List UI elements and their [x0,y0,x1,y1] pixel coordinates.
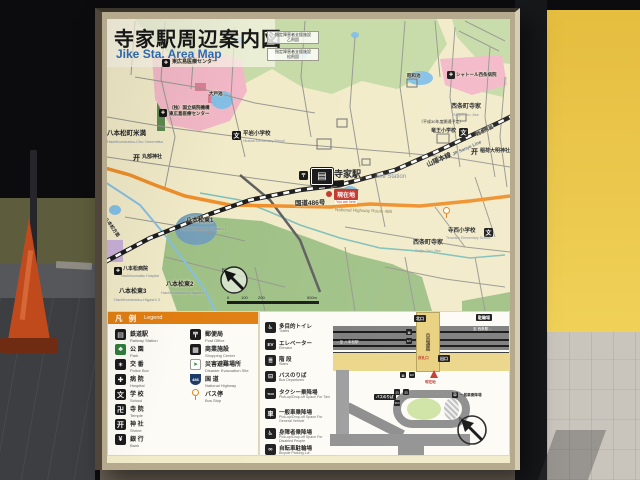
svg-text:N: N [459,417,463,423]
car-icon: 車 [265,408,276,419]
scale-tick: 200 [258,295,265,300]
station-detail-map: ←至 八本松駅 至 西条駅→ 自由通路 北口 駐輪場 ≣ EV 改札口 出口 ≣… [330,312,509,455]
poi-label: 平岩小学校 [243,132,271,138]
ticket-gate-label: 改札口 [418,356,429,361]
area-label-romaji: Saijo-Cho Jike [415,248,441,253]
bicycle-parking-chip: 駐輪場 [476,314,492,321]
hospital-icon: ✚ [162,59,170,67]
car-icon: 車 [452,392,458,398]
bicycle-icon: ∞ [265,444,276,455]
post-office-icon: 〒 [299,171,308,180]
pond-label: 大戸池 [209,92,223,97]
poi-label: 東広島医療センター [169,112,210,117]
area-label: 八本松東3 [119,289,146,295]
poi-label: （独）国立病院機構 [169,106,210,111]
legend-panel: 凡 例 Legend ▤ 鉄道駅Railway Station ♣ 公 園Par… [108,312,258,455]
station-label: 寺家駅 [334,170,361,179]
shopping-icon: ▦ [190,344,201,355]
taxi-icon: TAXI [265,388,276,399]
area-label-romaji: Saijo-Cho Jike [453,112,479,117]
poi-label: 八本松病院 [123,267,148,272]
route-shield-icon: 486 [190,374,201,385]
stairs-icon: ≣ [406,329,412,335]
poi-label: 丸部神社 [142,155,162,160]
legend-item-toilets: ♿ 多目的トイレToilets [265,322,337,334]
legend-item-taxi-space: TAXI タクシー乗降場Pick-up/Drop-off Space For T… [265,388,337,400]
you-are-here-badge: 現在地 [334,189,358,200]
elevator-icon: EV [409,372,415,378]
you-are-here-dot [326,191,332,197]
temple-icon: 卍 [115,404,126,415]
area-label: 西条町寺家 [451,104,481,110]
svg-text:N: N [222,268,226,274]
legend-item-hospital: ✚ 病 院Hospital [115,374,144,388]
legend-item-bus-departures: ⊟ バスのりばBus Departures [265,371,337,383]
area-label-romaji: Hachihonmatsu-Higashi 1 [181,226,227,231]
north-compass-detail: N [456,414,488,446]
train-icon: ▤ [115,329,126,340]
facility-note: 指定障害者支援施設乙飛園 [267,31,319,44]
poi-label: 竜王小学校 [431,129,456,134]
stairs-icon: ≣ [265,355,276,366]
photo-of-station-area-map-sign: 寺家駅周辺案内図 Jike Sta. Area Map 八本松町米満 Hachi… [0,0,640,480]
evacuation-icon: ➤ [190,359,201,370]
to-hachihonmatsu-label: ←至 八本松駅 [336,340,359,345]
legend-item-school: 文 学 校School [115,389,144,403]
bus-icon: ⊟ [265,371,276,382]
legend-item-elevator: EV エレベーターElevator [265,339,337,351]
you-are-here-pin [430,370,438,378]
legend-item-railway-station: ▤ 鉄道駅Railway Station [115,329,158,343]
route-486-label: 国道486号 [295,200,326,208]
bus-icon: ⊟ [403,389,409,395]
poi-label-romaji: Hiraiwa Elementary School [243,139,285,143]
legend-item-shrine: 开 神 社Shrine [115,419,144,433]
legend-item-national-highway: 486 国 道National Highway [190,374,236,388]
stairs-icon: ≣ [400,372,406,378]
police-icon: ✶ [115,359,126,370]
roundabout-island [407,398,441,420]
legend-item-bicycle-parking: ∞ 自転車駐輪場Bicycle Parking Lot [265,444,337,456]
shrine-icon: 开 [115,419,126,430]
park-tree-icon: ♣ [115,344,126,355]
free-passage-label: 自由通路 [425,333,431,351]
area-label: 八本松町米満 [107,131,146,138]
bus-icon: ⊟ [394,389,400,395]
poi-label: 寺西小学校 [448,229,476,235]
bus-stop-icon [190,389,201,400]
area-label: 八本松東2 [166,282,193,288]
exit-chip: 出口 [438,355,450,362]
poi-label-romaji: Hachihonmatsu Hospital [121,274,159,278]
hospital-icon: ✚ [159,109,167,117]
facility-note: 指定障害者支援施設松飛園 [267,48,319,61]
legend-item-shopping-center: ▦ 商業施設Shopping Center [190,344,235,358]
poi-label-romaji: Teranishi Elementary School [446,236,490,240]
wheelchair-icon: ♿ [265,428,276,439]
hospital-icon: ✚ [115,374,126,385]
scale-bar: 0 100 200 500m [227,295,319,305]
you-are-here-label: 現在地 [425,380,436,385]
area-label-romaji: Hachihonmatsu-Higashi 3 [114,297,160,302]
bank-icon: ¥ [115,434,126,445]
bottom-road [330,434,470,446]
traffic-cone-base [0,338,58,353]
taxi-icon: TAXI [394,400,400,406]
area-label-romaji: Hachihonmatsu-Higashi 2 [161,290,207,295]
area-label: 八本松東1 [186,218,213,224]
yellow-building-wall [547,10,640,332]
road-stub [398,446,424,455]
bus-stop-icon [443,207,450,218]
poi-label: 稲荷大明神社 [480,149,510,154]
sign-board: 寺家駅周辺案内図 Jike Sta. Area Map 八本松町米満 Hachi… [95,8,520,470]
legend-item-evacuation-site: ➤ 災害避難場所Disaster Evacuation Site [190,359,249,373]
toilet-icon: ♿ [265,322,276,333]
side-road [336,370,349,434]
map-paper: 寺家駅周辺案内図 Jike Sta. Area Map 八本松町米満 Hachi… [107,19,510,463]
bus-boarding-chip: バスのりば [374,394,396,400]
poi-label: 東広島医療センター [172,60,217,65]
area-label-romaji: Hachihonmatsu-Cho Yonemitsu [107,139,163,144]
legend-header: 凡 例 Legend [108,312,258,324]
you-are-here-en: You are here [335,200,357,204]
legend-item-disabled-space: ♿ 身障者乗降場Pick-up/Drop-off Space For Disab… [265,428,337,444]
school-icon: 文 [459,128,468,137]
pond-label: 昭和池 [407,74,421,79]
hospital-icon: ✚ [447,71,455,79]
station-label-en: Jike Station [375,174,406,180]
legend-header-jp: 凡 例 [115,313,138,324]
scale-tick: 0 [227,295,229,300]
legend-header-en: Legend [144,315,162,321]
poi-label: シャトール西条病院 [456,73,497,78]
area-label: 西条町寺家 [413,240,443,246]
scale-tick: 500m [307,295,317,300]
construction-note: （平成30年度開通予定） [419,120,463,124]
station-panel: ♿ 多目的トイレToilets EV エレベーターElevator ≣ 階 段S… [260,312,509,455]
north-compass: N [219,265,249,295]
legend-item-police-box: ✶ 交 番Police Box [115,359,149,373]
north-exit-chip: 北口 [414,315,426,322]
to-saijo-label: 至 西条駅→ [473,327,492,332]
legend-item-stairs: ≣ 階 段Stairs [265,355,337,367]
elevator-icon: EV [406,338,412,344]
shrine-icon: 开 [133,153,140,163]
elevator-icon: EV [265,339,276,350]
school-icon: 文 [115,389,126,400]
legend-item-bus-stop: バス停Bus Stop [190,389,223,403]
legend-item-temple: 卍 寺 院Temple [115,404,144,418]
school-icon: 文 [232,131,241,140]
legend-item-bank: ¥ 銀 行Bank [115,434,144,448]
legend-item-post-office: 〒 郵便局Post Office [190,329,225,343]
scale-tick: 100 [241,295,248,300]
train-station-icon: ▤ [311,168,333,185]
legend-item-general-vehicle-space: 車 一般車乗降場Pick-up/Drop-off Space For Gener… [265,408,337,424]
legend-item-park: ♣ 公 園Park [115,344,144,358]
general-car-label: 一般車乗降場 [460,393,482,398]
post-office-icon: 〒 [190,329,201,340]
